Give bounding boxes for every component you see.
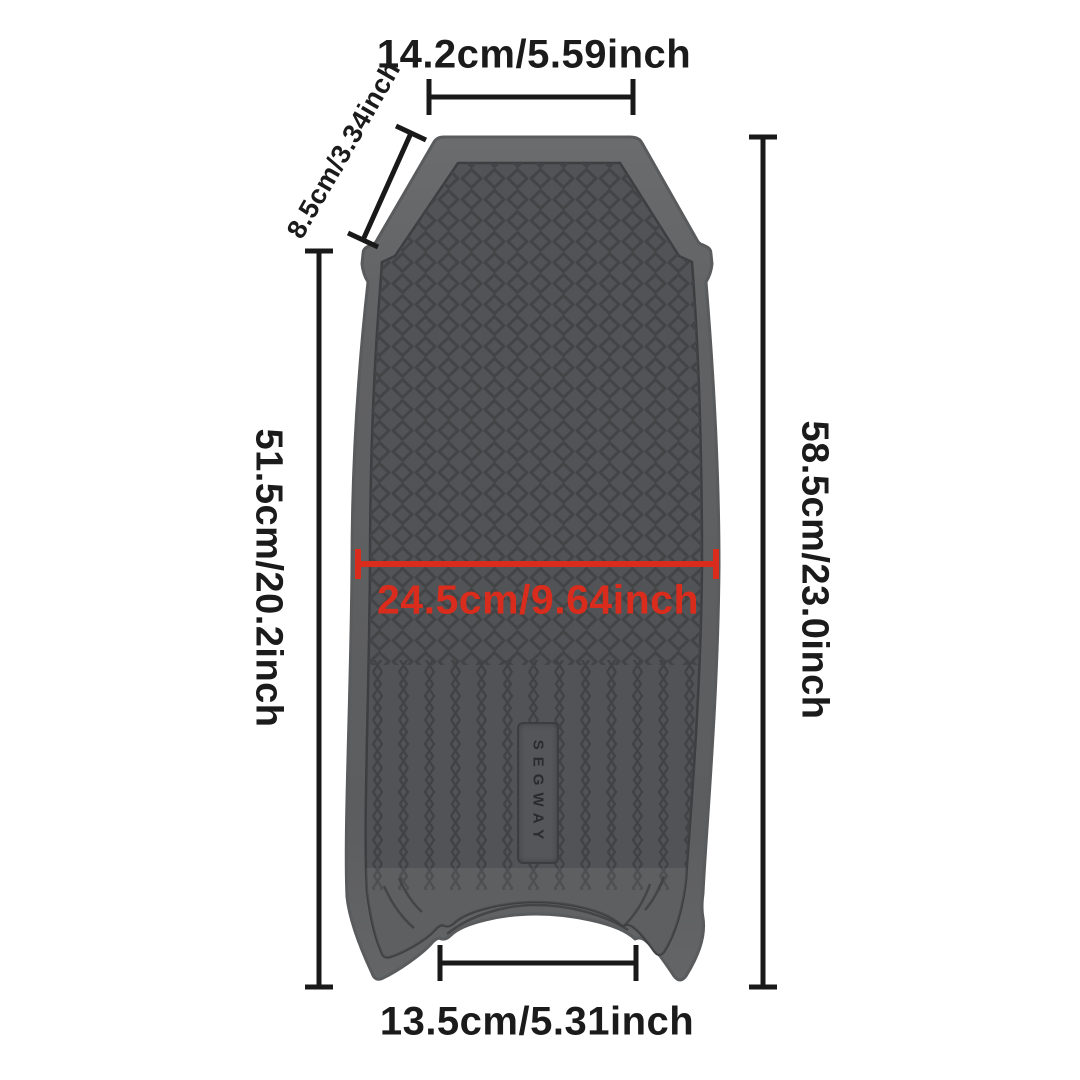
mat-silhouette [340,137,740,998]
segway-logo-plate: SEGWAY [517,722,559,864]
dimension-label-middle-width: 24.5cm/9.64inch [377,577,699,624]
dimension-label-right-height: 58.5cm/23.0inch [793,420,836,719]
dimension-label-top-width: 14.2cm/5.59inch [377,33,691,78]
dimension-label-bottom-width: 13.5cm/5.31inch [380,1000,694,1045]
floor-mat-illustration [0,0,1080,1080]
product-dimension-diagram: SEGWAY 14.2cm/5.59inch 8.5cm/3.34inch 51… [0,0,1080,1080]
dimension-label-left-height: 51.5cm/20.2inch [247,428,290,727]
segway-logo-text: SEGWAY [530,740,547,846]
mat-texture [340,150,740,998]
